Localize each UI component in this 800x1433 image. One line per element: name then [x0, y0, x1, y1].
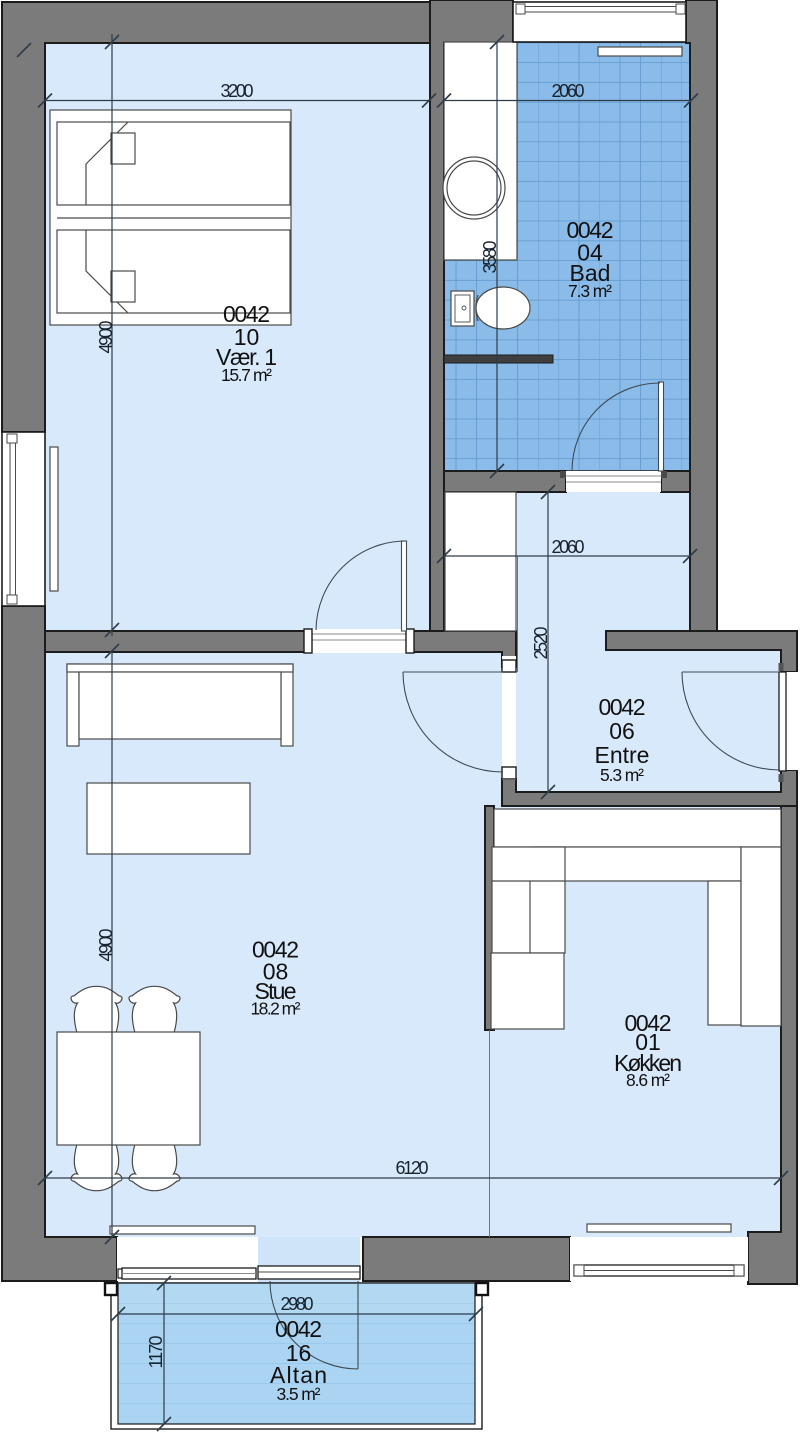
- svg-text:4900: 4900: [96, 929, 116, 962]
- svg-text:6120: 6120: [396, 1158, 429, 1178]
- svg-text:2060: 2060: [552, 81, 585, 101]
- svg-text:2520: 2520: [531, 627, 551, 660]
- svg-text:3200: 3200: [221, 81, 254, 101]
- svg-text:15.7 m²: 15.7 m²: [221, 365, 272, 385]
- svg-text:3580: 3580: [480, 241, 500, 274]
- svg-text:7.3 m²: 7.3 m²: [568, 281, 612, 301]
- svg-text:1170: 1170: [146, 1336, 166, 1369]
- svg-text:2060: 2060: [552, 537, 585, 557]
- svg-text:4900: 4900: [96, 321, 116, 354]
- svg-text:0042: 0042: [275, 1316, 322, 1342]
- svg-text:0042: 0042: [599, 694, 646, 720]
- svg-text:5.3 m²: 5.3 m²: [600, 765, 644, 785]
- svg-text:3.5 m²: 3.5 m²: [277, 1384, 321, 1404]
- svg-text:8.6 m²: 8.6 m²: [626, 1070, 670, 1090]
- svg-text:2980: 2980: [281, 1294, 314, 1314]
- svg-text:18.2 m²: 18.2 m²: [251, 999, 301, 1019]
- svg-text:06: 06: [609, 718, 635, 744]
